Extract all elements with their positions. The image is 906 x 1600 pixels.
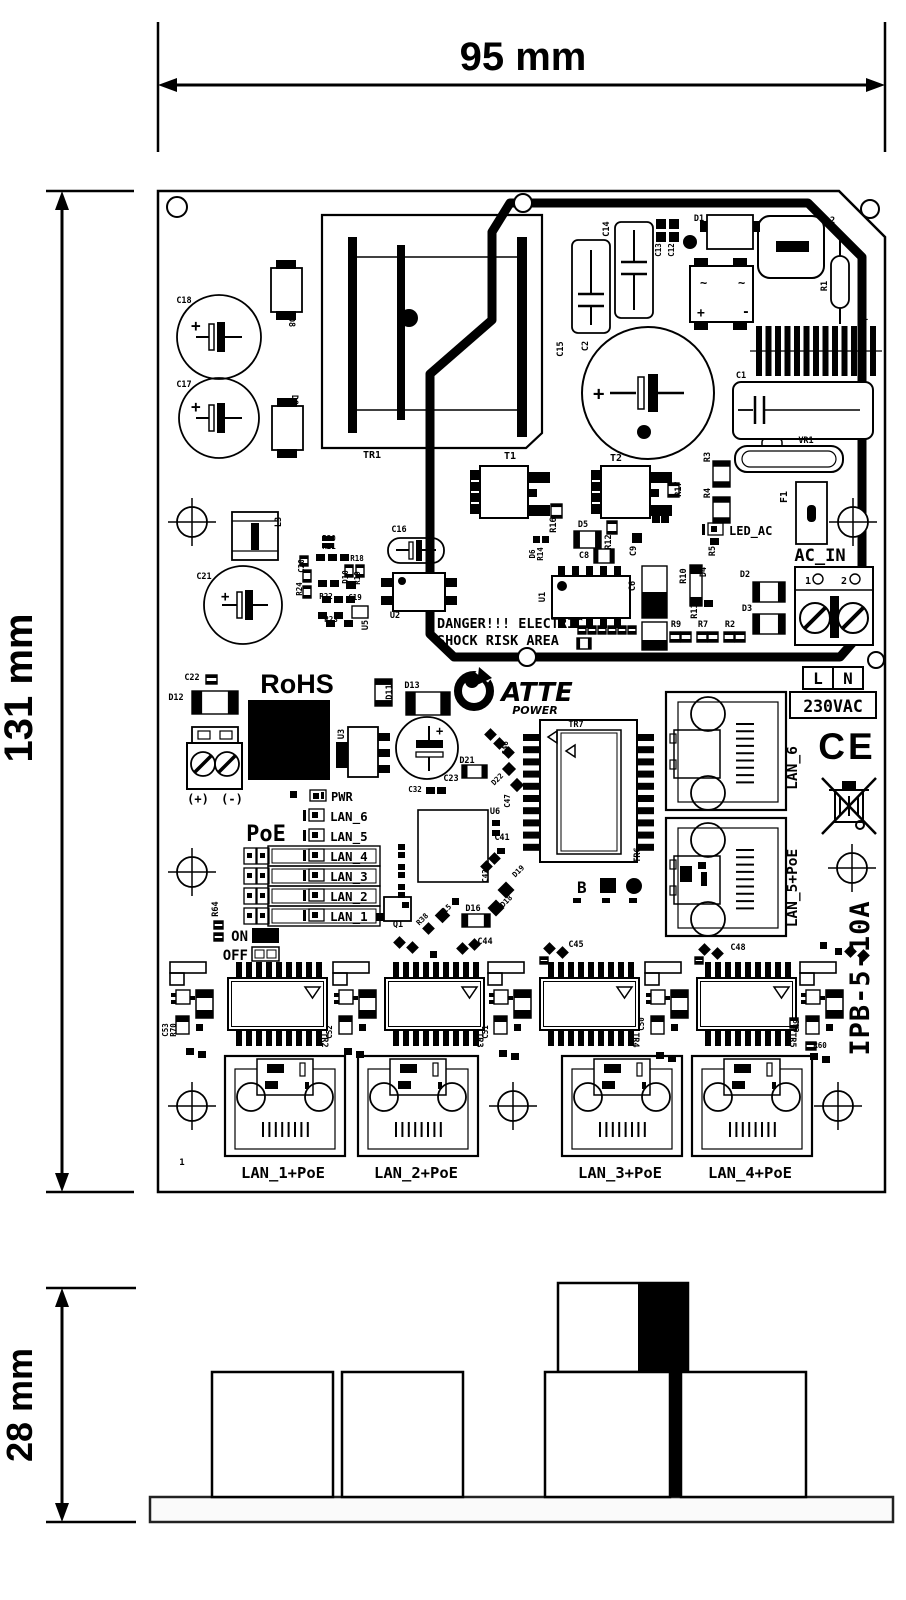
height-dimension-label: 131 mm xyxy=(0,614,41,763)
passive-chip xyxy=(551,504,562,518)
lan5-poe-port-label: LAN_5+PoE xyxy=(785,849,801,928)
voltage-label: 230VAC xyxy=(803,697,863,716)
lan4-poe-port xyxy=(692,1056,812,1156)
svg-text:LAN_1: LAN_1 xyxy=(330,909,368,925)
refdes-u2: U2 xyxy=(390,611,400,621)
passive-chip xyxy=(330,580,339,587)
passive-chip xyxy=(681,632,691,642)
ic-u6 xyxy=(418,810,488,882)
refdes-c13: C13 xyxy=(654,243,663,257)
passive-chip xyxy=(406,692,450,715)
passive-chip xyxy=(670,632,680,642)
passive-chip xyxy=(656,1052,664,1059)
refdes-r3: R3 xyxy=(703,452,713,462)
passive-chip xyxy=(607,521,617,534)
refdes-r12: R12 xyxy=(604,534,614,549)
via-dot xyxy=(683,235,697,249)
refdes-d21: D21 xyxy=(459,756,474,766)
passive-chip xyxy=(710,538,719,545)
lan1-poe-label: LAN_1+PoE xyxy=(241,1164,325,1182)
lan2-poe-port xyxy=(358,1056,478,1156)
danger-text-line2: SHOCK RISK AREA xyxy=(437,633,559,649)
pcb-dimensional-drawing: 95 mm 131 mm + xyxy=(0,0,906,1600)
svg-text:LAN_2: LAN_2 xyxy=(330,889,368,905)
rohs-label: RoHS xyxy=(260,669,334,699)
passive-chip xyxy=(577,638,591,649)
arrow-left-icon xyxy=(158,78,177,92)
svg-text:+: + xyxy=(191,316,201,335)
passive-chip xyxy=(462,914,490,927)
refdes-c44: C44 xyxy=(477,937,492,947)
passive-chip xyxy=(214,933,223,941)
refdes-l3: L3 xyxy=(274,517,284,527)
refdes-tr4: TR4 xyxy=(630,1032,640,1047)
refdes-r21: R21 xyxy=(322,542,336,551)
passive-chip xyxy=(704,600,713,607)
lan6-port-label: LAN_6 xyxy=(785,746,801,790)
refdes-d10: D10 xyxy=(341,570,350,584)
passive-chip xyxy=(398,884,405,890)
refdes-r22: R22 xyxy=(319,592,333,601)
refdes-c48: C48 xyxy=(730,943,745,953)
passive-chip xyxy=(344,1048,352,1055)
svg-text:LAN_5: LAN_5 xyxy=(330,829,368,845)
passive-chip xyxy=(206,675,217,684)
refdes-u5: U5 xyxy=(361,620,371,630)
arrow-up-icon xyxy=(55,191,69,210)
refdes-r18: R18 xyxy=(350,554,364,563)
heatsink-block xyxy=(248,700,330,780)
refdes-u6: U6 xyxy=(490,807,500,817)
passive-chip xyxy=(398,872,405,878)
passive-chip xyxy=(214,921,223,929)
transformer-tr7 xyxy=(523,720,654,862)
off-label: OFF xyxy=(223,948,248,964)
refdes-c19: C19 xyxy=(348,593,362,602)
refdes-c41: C41 xyxy=(494,833,509,843)
refdes-c18: C18 xyxy=(176,296,191,306)
refdes-d16: D16 xyxy=(465,904,480,914)
passive-chip xyxy=(713,497,730,523)
passive-chip xyxy=(822,1056,830,1063)
passive-chip xyxy=(820,942,827,949)
passive-chip xyxy=(540,957,548,964)
refdes-tr5: TR5 xyxy=(787,1032,797,1047)
passive-chip xyxy=(328,554,337,561)
lan1-poe-port xyxy=(225,1056,345,1156)
refdes-c49: C49 xyxy=(792,1019,801,1033)
passive-chip xyxy=(398,864,405,870)
refdes-u3: U3 xyxy=(337,729,347,739)
lan5-poe-port xyxy=(666,818,786,936)
passive-chip xyxy=(652,516,660,523)
passive-chip xyxy=(810,1053,818,1060)
pcb-board-edge xyxy=(150,1497,893,1522)
passive-chip xyxy=(695,957,703,964)
passive-chip xyxy=(578,626,586,634)
lan3-poe-port xyxy=(562,1056,682,1156)
svg-text:LAN_3: LAN_3 xyxy=(330,869,368,885)
refdes-c1: C1 xyxy=(736,371,746,381)
poe-label: PoE xyxy=(246,822,286,847)
bridge-rectifier-b1: ~ ~ + - xyxy=(690,258,753,330)
refdes-d4: D4 xyxy=(699,567,709,577)
pcb-drawing-canvas: 95 mm 131 mm + xyxy=(0,0,906,1600)
refdes-c12: C12 xyxy=(667,243,676,257)
passive-chip xyxy=(632,533,642,543)
refdes-c6: C6 xyxy=(628,581,638,591)
refdes-d9: D9 xyxy=(289,395,299,405)
passive-chip xyxy=(186,1048,194,1055)
passive-chip xyxy=(642,640,667,650)
refdes-r2: R2 xyxy=(725,620,735,630)
refdes-d11: D11 xyxy=(385,684,395,699)
refdes-c15: C15 xyxy=(556,341,566,356)
refdes-r9: R9 xyxy=(671,620,681,630)
passive-chip xyxy=(542,536,549,543)
passive-chip xyxy=(835,948,842,955)
refdes-r7: R7 xyxy=(698,620,708,630)
passive-chip xyxy=(316,554,325,561)
lan2-poe-label: LAN_2+PoE xyxy=(374,1164,458,1182)
passive-chip xyxy=(402,902,409,908)
passive-chip xyxy=(594,549,614,563)
side-tall-component-dark xyxy=(638,1283,688,1372)
passive-chip xyxy=(398,852,405,858)
passive-chip xyxy=(574,531,601,548)
refdes-vr1: VR1 xyxy=(798,436,813,446)
passive-chip xyxy=(511,1053,519,1060)
arrow-up-icon xyxy=(55,1288,69,1307)
model-label: IPB-5-10A xyxy=(845,900,876,1055)
refdes-t2: T2 xyxy=(610,453,622,464)
led-ac-label: LED_AC xyxy=(729,524,772,539)
svg-text:+: + xyxy=(436,724,443,738)
refdes-r64: R64 xyxy=(211,901,221,916)
refdes-u1: U1 xyxy=(538,592,548,602)
passive-chip xyxy=(753,582,785,602)
refdes-r1: R1 xyxy=(820,281,830,291)
capacitor-c1 xyxy=(733,382,873,439)
side-connector-4 xyxy=(681,1372,806,1497)
refdes-r23: R23 xyxy=(324,615,338,624)
passive-chip xyxy=(668,1055,676,1062)
passive-chip xyxy=(697,632,707,642)
refdes-c32: C32 xyxy=(408,785,422,794)
refdes-c17: C17 xyxy=(176,380,191,390)
ac-in-label: AC_IN xyxy=(794,546,845,566)
passive-chip xyxy=(437,787,446,794)
refdes-r5: R5 xyxy=(708,546,718,556)
refdes-c16: C16 xyxy=(391,525,406,535)
side-height-dimension-label: 28 mm xyxy=(0,1348,40,1462)
passive-chip xyxy=(352,606,368,618)
refdes-d1: D1 xyxy=(694,214,704,224)
passive-chip xyxy=(318,580,327,587)
refdes-r4: R4 xyxy=(703,488,713,498)
side-connector-3 xyxy=(545,1372,670,1497)
passive-chip xyxy=(499,1050,507,1057)
svg-text:+: + xyxy=(191,397,201,416)
lan6-port xyxy=(666,692,786,810)
refdes-c14: C14 xyxy=(602,221,612,236)
fiducial-b-label: B xyxy=(577,878,587,897)
dimension-width: 95 mm xyxy=(158,22,885,152)
passive-chip xyxy=(356,1051,364,1058)
passive-chip xyxy=(344,620,353,627)
svg-text:LAN_6: LAN_6 xyxy=(330,809,368,825)
pin1-marker: 1 xyxy=(179,1158,184,1168)
refdes-d2: D2 xyxy=(740,570,750,580)
svg-text:1: 1 xyxy=(805,576,811,587)
refdes-d3: D3 xyxy=(742,604,752,614)
refdes-q1: Q1 xyxy=(393,920,403,930)
refdes-r19: R19 xyxy=(353,571,362,585)
refdes-d13: D13 xyxy=(404,681,419,691)
arrow-down-icon xyxy=(55,1503,69,1522)
passive-chip xyxy=(708,632,718,642)
lan3-poe-label: LAN_3+PoE xyxy=(578,1164,662,1182)
ce-mark: CE xyxy=(818,726,875,767)
svg-text:~: ~ xyxy=(738,276,745,290)
passive-chip xyxy=(492,820,500,826)
svg-text:~: ~ xyxy=(700,276,707,290)
arrow-down-icon xyxy=(55,1173,69,1192)
pcb-top-view: + + xyxy=(158,191,885,1192)
passive-chip xyxy=(713,461,730,487)
side-connector-1 xyxy=(212,1372,333,1497)
lan4-poe-label: LAN_4+PoE xyxy=(708,1164,792,1182)
refdes-r10: R10 xyxy=(679,568,689,583)
refdes-c8: C8 xyxy=(579,551,589,561)
passive-chip xyxy=(192,691,238,714)
dc-plus-label: (+) xyxy=(187,792,209,806)
passive-chip xyxy=(735,632,745,642)
refdes-c23: C23 xyxy=(443,774,458,784)
passive-chip xyxy=(598,626,606,634)
dimension-height: 131 mm xyxy=(0,191,134,1192)
refdes-c47: C47 xyxy=(503,794,512,808)
pwr-label: PWR xyxy=(331,790,353,804)
refdes-r16: R16 xyxy=(549,517,559,532)
svg-text:+: + xyxy=(221,589,229,605)
passive-chip xyxy=(669,219,679,229)
dimension-side-height: 28 mm xyxy=(0,1288,136,1522)
refdes-c43: C43 xyxy=(481,869,490,883)
arrow-right-icon xyxy=(866,78,885,92)
passive-chip xyxy=(452,898,459,905)
passive-chip xyxy=(398,844,405,850)
passive-chip xyxy=(398,892,405,898)
refdes-r11: R11 xyxy=(690,603,700,618)
side-divider-bar xyxy=(669,1372,681,1497)
svg-text:+: + xyxy=(697,306,705,321)
passive-chip xyxy=(588,626,596,634)
passive-chip xyxy=(618,626,626,634)
on-label: ON xyxy=(231,929,248,945)
passive-chip xyxy=(608,626,616,634)
winding-dot xyxy=(400,309,418,327)
refdes-r60: R60 xyxy=(813,1041,827,1050)
passive-chip xyxy=(497,848,505,854)
refdes-c46: C46 xyxy=(501,741,510,755)
led-tick xyxy=(702,524,705,535)
passive-chip xyxy=(340,554,349,561)
refdes-t1: T1 xyxy=(504,451,516,462)
passive-chip xyxy=(462,765,487,778)
svg-text:-: - xyxy=(742,305,750,320)
passive-chip xyxy=(724,632,734,642)
width-dimension-label: 95 mm xyxy=(460,35,587,79)
pcb-side-view: 28 mm xyxy=(0,1283,893,1522)
passive-chip xyxy=(334,596,343,603)
refdes-r17: R17 xyxy=(674,481,684,496)
passive-chip xyxy=(198,1051,206,1058)
refdes-r70: R70 xyxy=(169,1023,178,1037)
refdes-r24: R24 xyxy=(295,582,304,596)
danger-text-line1: DANGER!!! ELECTRIC xyxy=(437,616,583,632)
coil-l1 xyxy=(750,326,882,376)
passive-chip xyxy=(303,586,311,598)
passive-chip xyxy=(628,626,636,634)
passive-chip xyxy=(753,614,785,634)
capacitor-c2-bulk: + xyxy=(582,327,714,459)
refdes-c9: C9 xyxy=(629,546,639,556)
passive-chip xyxy=(661,516,669,523)
refdes-c50: C50 xyxy=(637,1017,646,1031)
passive-chip xyxy=(426,787,435,794)
refdes-d8: D8 xyxy=(286,317,296,327)
refdes-f1: F1 xyxy=(779,491,790,503)
refdes-c51: C51 xyxy=(481,1025,490,1039)
refdes-d5: D5 xyxy=(578,520,588,530)
svg-text:2: 2 xyxy=(841,576,847,587)
refdes-c52: C52 xyxy=(325,1025,334,1039)
passive-chip xyxy=(430,951,437,958)
refdes-c20: C20 xyxy=(297,559,306,573)
passive-chip xyxy=(669,232,679,242)
refdes-d12: D12 xyxy=(168,693,183,703)
refdes-c2: C2 xyxy=(581,341,591,351)
brand-sub-label: POWER xyxy=(512,704,558,717)
refdes-c45: C45 xyxy=(568,940,583,950)
passive-chip xyxy=(642,592,667,618)
svg-text:LAN_4: LAN_4 xyxy=(330,849,368,865)
refdes-tr1: TR1 xyxy=(363,450,381,461)
refdes-l2: L2 xyxy=(825,216,835,226)
refdes-c22: C22 xyxy=(184,673,199,683)
passive-chip xyxy=(533,536,540,543)
passive-chip xyxy=(656,232,666,242)
refdes-tr6: TR6 xyxy=(633,847,643,862)
optocoupler-u2 xyxy=(381,573,457,611)
refdes-c21: C21 xyxy=(196,572,211,582)
passive-chip xyxy=(656,219,666,229)
side-connector-2 xyxy=(342,1372,463,1497)
neutral-label: N xyxy=(843,669,853,688)
line-label: L xyxy=(813,669,823,688)
fuse-f1 xyxy=(796,482,827,544)
passive-chip xyxy=(290,791,297,798)
refdes-tr7: TR7 xyxy=(568,720,583,730)
dc-minus-label: (-) xyxy=(221,792,243,806)
svg-text:+: + xyxy=(593,383,604,405)
refdes-r14: R14 xyxy=(536,547,545,561)
refdes-l1: L1 xyxy=(858,313,868,323)
